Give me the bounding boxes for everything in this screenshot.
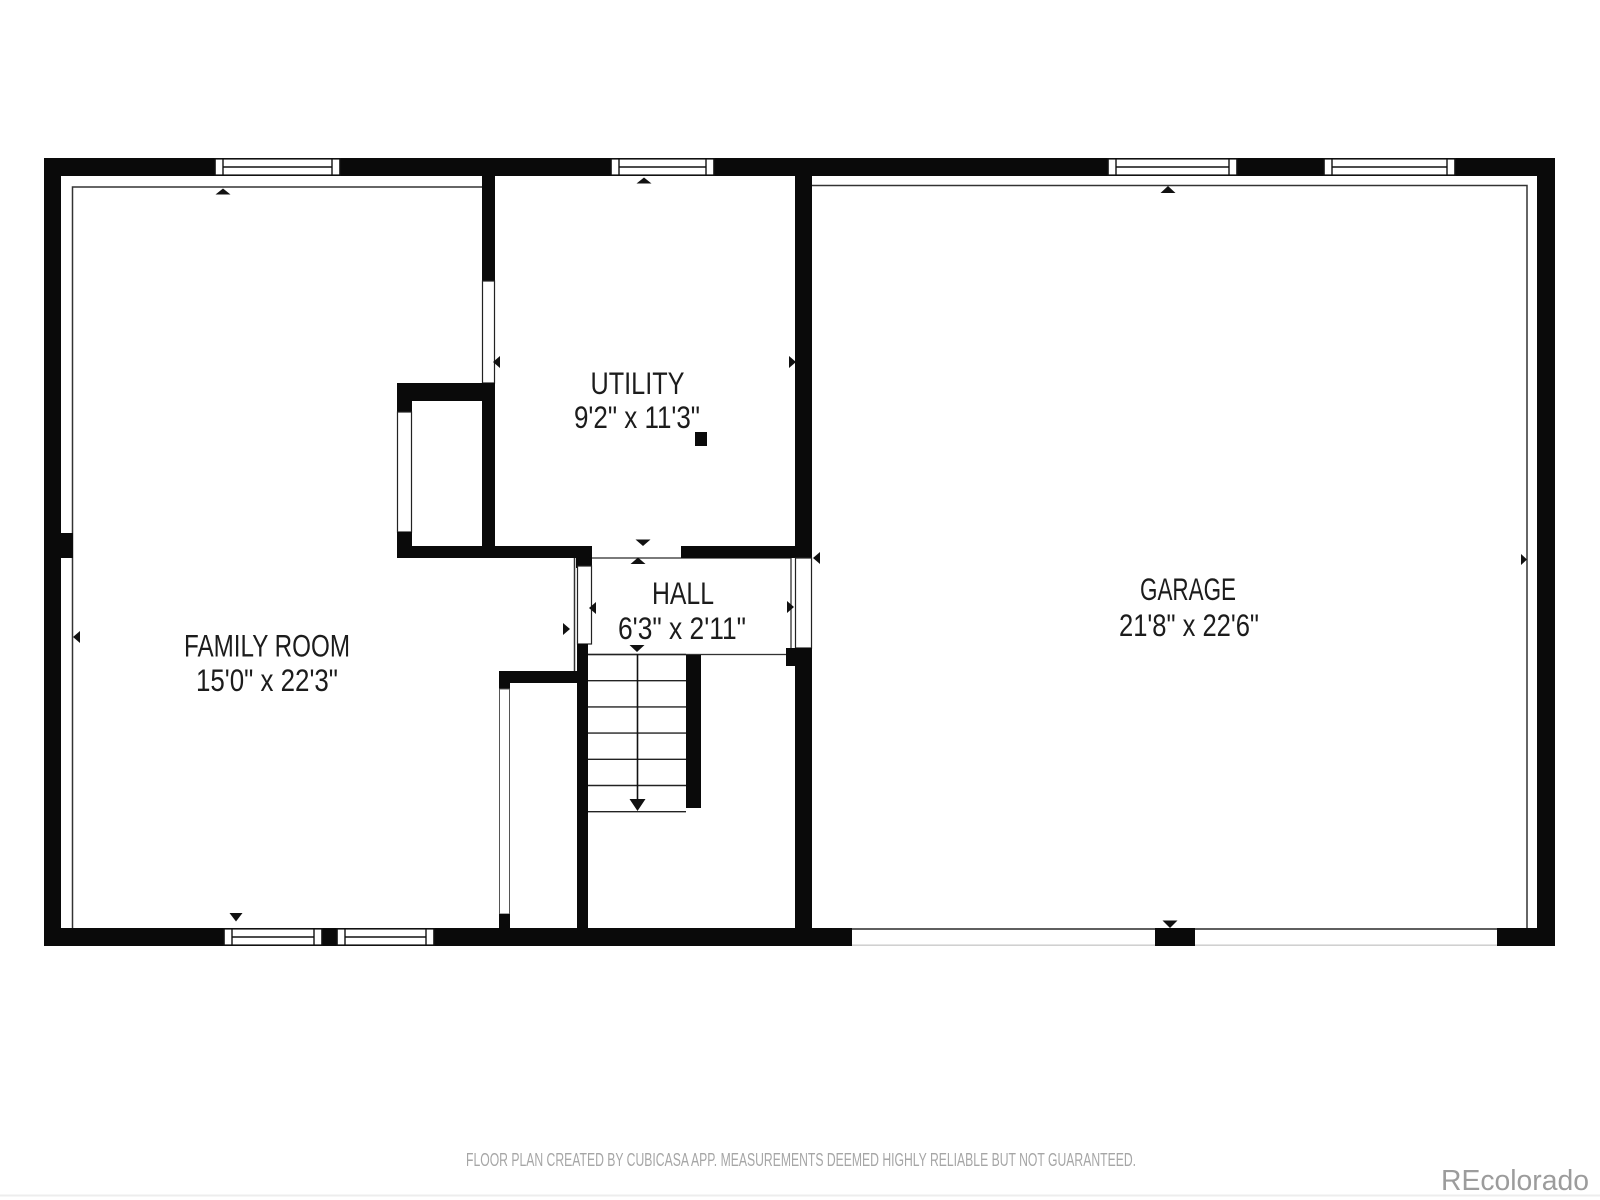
- svg-text:FAMILY ROOM: FAMILY ROOM: [184, 628, 350, 664]
- svg-text:15'0" x 22'3": 15'0" x 22'3": [196, 662, 338, 698]
- svg-text:6'3" x 2'11": 6'3" x 2'11": [618, 610, 746, 646]
- svg-text:FLOOR PLAN CREATED BY CUBICASA: FLOOR PLAN CREATED BY CUBICASA APP. MEAS…: [466, 1150, 1136, 1170]
- svg-text:9'2" x 11'3": 9'2" x 11'3": [574, 399, 700, 435]
- svg-text:21'8" x 22'6": 21'8" x 22'6": [1119, 607, 1259, 643]
- svg-text:HALL: HALL: [652, 575, 714, 611]
- svg-text:REcolorado: REcolorado: [1441, 1165, 1589, 1197]
- svg-text:UTILITY: UTILITY: [591, 365, 685, 401]
- svg-text:GARAGE: GARAGE: [1140, 571, 1236, 607]
